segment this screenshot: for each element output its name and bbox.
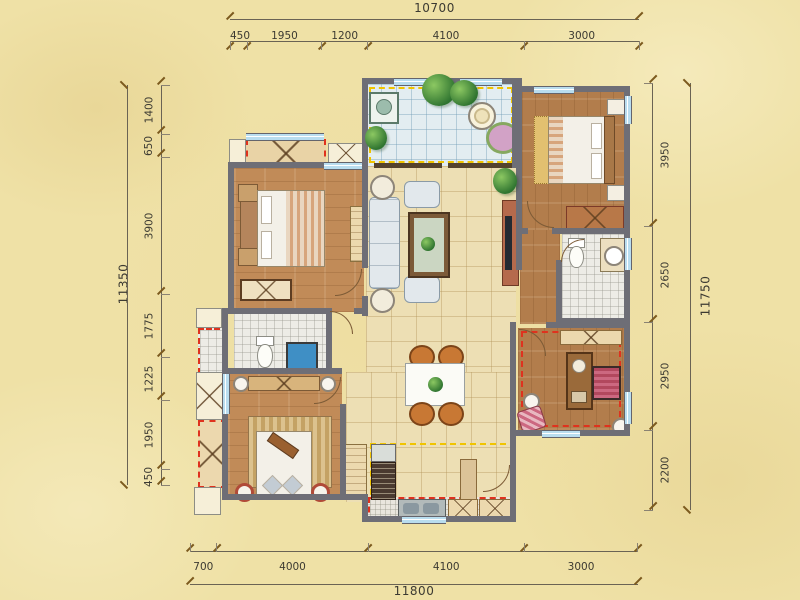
dimension-segment: 4000 <box>217 552 369 569</box>
side-table-icon <box>370 175 395 200</box>
dining-chair-icon <box>438 402 464 426</box>
dimension-right: 3950265029502200 11750 <box>650 83 706 510</box>
wall <box>354 308 368 314</box>
dimension-segment-label: 3900 <box>143 213 155 240</box>
floorplan-canvas: 10700 4501950120041003000 70040004100300… <box>0 0 800 600</box>
window-icon <box>324 162 362 170</box>
dimension-segments: 4501950120041003000 <box>230 24 639 42</box>
dimension-segment: 1400 <box>137 85 161 134</box>
shelf-bench-icon <box>560 330 622 345</box>
dimension-segment-label: 4100 <box>433 561 460 573</box>
wall <box>552 228 630 234</box>
window-icon <box>402 516 446 524</box>
wall <box>546 322 630 328</box>
ledge-box <box>196 372 223 420</box>
balcony-sliding-door-icon <box>374 163 442 168</box>
stove-cabinet-icon <box>371 462 396 500</box>
window-icon <box>624 392 632 424</box>
wardrobe-icon <box>344 444 367 499</box>
headboard-icon <box>240 201 258 249</box>
dimension-top: 10700 4501950120041003000 <box>230 2 639 42</box>
window-icon <box>624 238 632 270</box>
dimension-segment: 1225 <box>137 357 161 400</box>
dimension-segment: 450 <box>230 24 247 41</box>
nightstand-icon <box>607 99 625 115</box>
dimension-segments: 3950265029502200 <box>652 83 677 510</box>
dimension-segment: 4100 <box>368 24 525 41</box>
dimension-total-label: 11800 <box>190 584 638 598</box>
dimension-bottom: 700400041003000 11800 <box>190 551 638 597</box>
fridge-icon <box>371 444 396 462</box>
dimension-segment: 3950 <box>653 83 677 227</box>
dimension-segment-label: 3000 <box>568 561 595 573</box>
dimension-segment-label: 4100 <box>433 30 460 42</box>
desk-chair-icon <box>592 366 621 400</box>
wall <box>510 322 516 430</box>
dimension-segment: 2200 <box>653 430 677 510</box>
wall <box>228 162 234 314</box>
dimension-segment-label: 2950 <box>659 363 671 390</box>
dining-table-icon <box>405 363 465 406</box>
plant-icon <box>450 80 478 106</box>
stool-icon <box>233 376 249 392</box>
plant-icon <box>365 126 387 150</box>
dimension-segment-label: 1225 <box>143 365 155 392</box>
dimension-total-line <box>127 85 128 485</box>
dimension-segment: 4100 <box>368 552 524 569</box>
toilet-icon <box>257 344 273 368</box>
washbasin-icon <box>286 342 318 371</box>
dimension-segment-label: 1400 <box>143 96 155 123</box>
dimension-total-line <box>690 83 691 510</box>
desk-icon <box>566 352 593 410</box>
tv-icon <box>505 216 512 270</box>
dining-chair-icon <box>409 402 435 426</box>
dimension-segment: 1775 <box>137 295 161 358</box>
headboard-icon <box>604 116 615 184</box>
window-icon <box>624 96 632 124</box>
dimension-segment-label: 650 <box>143 136 155 156</box>
dimension-segment: 3900 <box>137 157 161 294</box>
dimension-segment-label: 450 <box>143 467 155 487</box>
dimension-segment-label: 1950 <box>143 421 155 448</box>
wall <box>510 430 516 522</box>
wall <box>516 228 528 234</box>
nightstand-icon <box>238 184 258 202</box>
dresser-niche <box>566 206 624 230</box>
pillar-box <box>196 308 222 328</box>
dimension-total-label: 10700 <box>230 1 639 15</box>
dimension-segment-label: 700 <box>193 561 213 573</box>
wall <box>222 494 368 500</box>
coffee-table-icon <box>408 212 450 278</box>
dimension-segment-label: 2200 <box>659 457 671 484</box>
dimension-segment: 1950 <box>247 24 322 41</box>
pillar-box <box>194 487 221 515</box>
console-table-icon <box>248 376 320 391</box>
dimension-segment-label: 3000 <box>568 30 595 42</box>
dimension-segment: 3000 <box>524 24 639 41</box>
dimension-segment-label: 3950 <box>659 141 671 168</box>
nightstand-icon <box>607 185 625 201</box>
bed-icon <box>256 431 312 500</box>
wall <box>228 368 328 374</box>
dimension-segment: 700 <box>190 552 217 569</box>
dimension-segments: 700400041003000 <box>190 551 638 569</box>
dimension-segments: 14006503900177512251950450 <box>137 85 162 485</box>
dimension-segment-label: 1775 <box>143 313 155 340</box>
dimension-segment-label: 2650 <box>659 261 671 288</box>
dimension-segment-label: 1950 <box>271 30 298 42</box>
wall <box>340 404 346 500</box>
window-icon <box>222 374 230 414</box>
dimension-segment: 1950 <box>137 400 161 469</box>
bench-icon <box>240 279 292 301</box>
dimension-total-line <box>230 19 639 20</box>
wall <box>228 308 326 314</box>
bed-icon <box>548 116 606 184</box>
dimension-segment: 1200 <box>322 24 368 41</box>
wall <box>362 166 368 268</box>
tall-cabinet-icon <box>460 459 477 501</box>
dimension-segment-label: 1200 <box>331 30 358 42</box>
plant-icon <box>493 168 517 194</box>
bay-window-icon <box>246 133 324 141</box>
bed-icon <box>257 190 325 267</box>
ledge-box <box>328 143 364 163</box>
washing-machine-icon <box>369 92 399 124</box>
dimension-segment-label: 4000 <box>279 561 306 573</box>
armchair-icon <box>404 276 440 303</box>
window-icon <box>542 430 580 438</box>
dimension-left: 11350 14006503900177512251950450 <box>112 85 164 485</box>
armchair-icon <box>404 181 440 208</box>
wall <box>326 368 342 374</box>
dimension-segment: 2650 <box>653 227 677 323</box>
dimension-total-label: 11350 <box>116 264 130 305</box>
dimension-segment: 2950 <box>653 323 677 430</box>
vanity-icon <box>600 238 625 272</box>
wall <box>556 260 562 324</box>
dimension-total-label: 11750 <box>698 275 712 316</box>
wall <box>362 78 368 170</box>
sofa-icon <box>369 197 400 289</box>
nightstand-icon <box>238 248 258 266</box>
window-icon <box>534 86 574 94</box>
dimension-segment: 3000 <box>524 552 638 569</box>
side-table-icon <box>370 288 395 313</box>
